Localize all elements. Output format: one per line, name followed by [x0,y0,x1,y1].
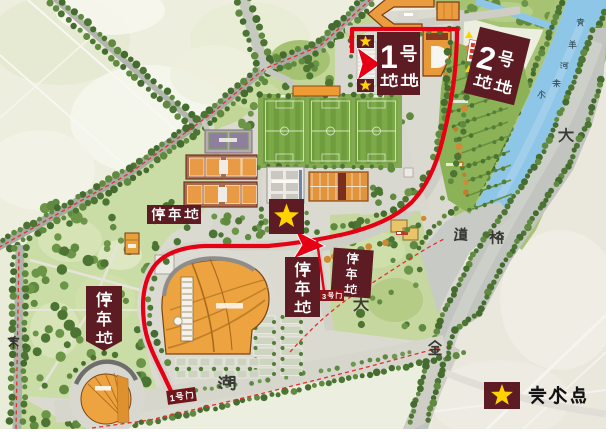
svg-text:3: 3 [322,292,326,301]
svg-text:1: 1 [380,39,398,75]
